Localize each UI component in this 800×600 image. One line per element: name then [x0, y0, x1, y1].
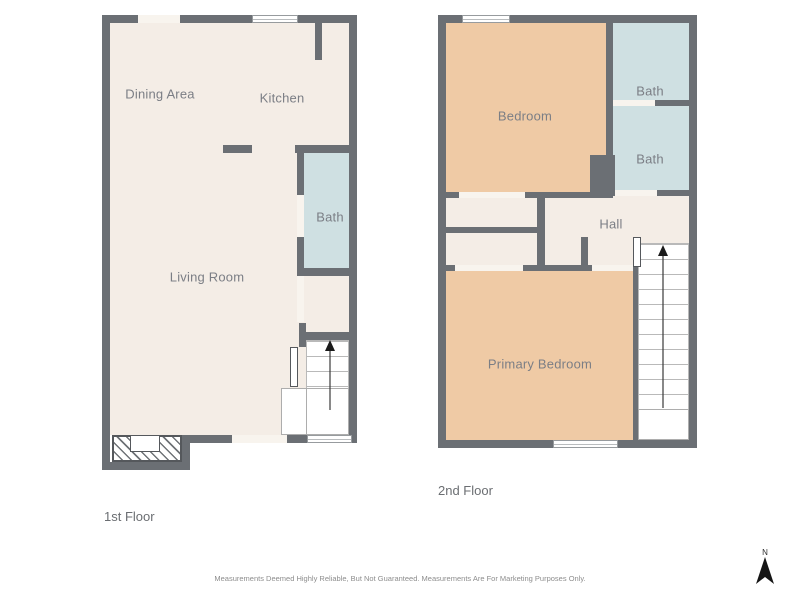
floor-title-first: 1st Floor [104, 509, 155, 524]
room-label-kitchen: Kitchen [260, 91, 305, 106]
window [462, 15, 510, 23]
room-label-bath: Bath [316, 210, 344, 225]
wall-segment [689, 15, 697, 448]
door-opening [613, 100, 655, 106]
wall-segment [182, 435, 190, 470]
door-opening [615, 190, 657, 196]
north-arrow-icon [754, 557, 776, 585]
wall-segment [657, 190, 689, 196]
wall-segment [295, 145, 349, 153]
window [252, 15, 298, 23]
wall-segment [297, 268, 349, 276]
stairs-up-arrow [653, 243, 673, 410]
bathroom-lower-floor [613, 106, 689, 190]
bedroom-floor [446, 23, 606, 192]
floor-plan-page: { "colors": { "wall": "#6b6f74", "floor"… [0, 0, 800, 600]
floor-plan-first: Dining Area Kitchen Bath Living Room [102, 15, 357, 472]
room-label-primary: Primary Bedroom [488, 357, 592, 372]
wall-segment [581, 237, 588, 271]
door-opening [455, 265, 523, 271]
window [307, 435, 352, 443]
window [553, 440, 618, 448]
door-leaf [633, 237, 641, 267]
stair-landing [638, 409, 689, 440]
door-opening [297, 195, 304, 237]
measurements-disclaimer: Measurements Deemed Highly Reliable, But… [0, 574, 800, 583]
wall-segment [446, 192, 459, 198]
wall-segment [297, 153, 304, 195]
stair-landing-divider [306, 388, 307, 435]
room-label-dining: Dining Area [125, 87, 194, 102]
wall-segment [655, 100, 689, 106]
room-label-bedroom: Bedroom [498, 109, 552, 124]
wall-segment [438, 15, 446, 448]
room-label-bath-upper: Bath [636, 84, 664, 99]
room-label-bath-lower: Bath [636, 152, 664, 167]
room-label-hall: Hall [599, 217, 622, 232]
wall-segment [299, 323, 306, 347]
door-opening [138, 15, 180, 23]
door-opening [232, 435, 287, 443]
door-leaf [290, 347, 298, 387]
floor-title-second: 2nd Floor [438, 483, 493, 498]
wall-segment [315, 23, 322, 60]
primary-bedroom-floor [446, 271, 633, 440]
door-opening [592, 265, 633, 271]
door-opening [459, 192, 525, 198]
wall-segment [102, 15, 110, 470]
floor-plan-second: Bedroom Bath Bath Hall Primary Bedroom [438, 15, 697, 448]
wall-segment [590, 155, 615, 196]
door-opening [297, 276, 304, 322]
stairs-up-arrow [320, 338, 340, 412]
room-label-living: Living Room [170, 270, 244, 285]
compass-north-label: N [751, 548, 779, 557]
wall-segment [102, 462, 190, 470]
compass: N [751, 548, 779, 590]
wall-segment [223, 145, 252, 153]
fireplace-firebox [130, 435, 160, 452]
wall-segment [349, 15, 357, 443]
wall-segment [446, 227, 545, 233]
wall-segment [446, 265, 455, 271]
